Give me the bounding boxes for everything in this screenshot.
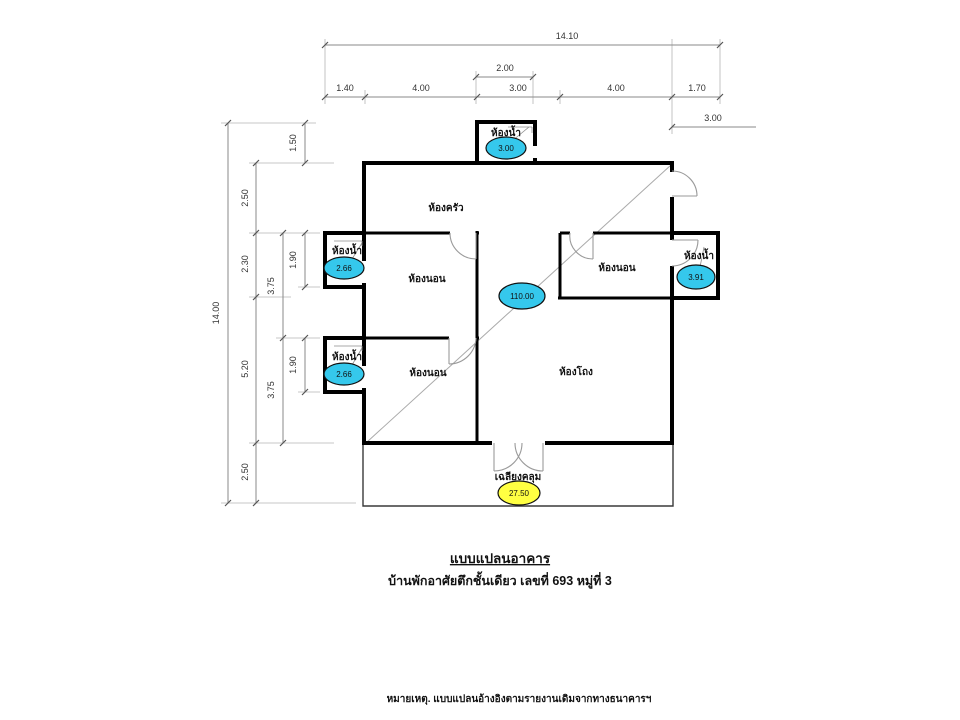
- dim-left-c2-2: 2.30: [240, 255, 250, 273]
- dim-left-total: 14.00: [211, 302, 221, 325]
- room-label-bedroom-bottom-left: ห้องนอน: [409, 367, 446, 379]
- dim-top-seg-2: 4.00: [412, 83, 430, 93]
- room-label-bedroom-top-left: ห้องนอน: [408, 273, 445, 285]
- dim-left-c2-3: 5.20: [240, 360, 250, 378]
- dim-left-c2-1: 2.50: [240, 189, 250, 207]
- room-label-bathroom-right: ห้องน้ำ: [684, 248, 714, 262]
- dim-top-seg-3: 3.00: [509, 83, 527, 93]
- extension-lines: [221, 39, 720, 503]
- area-value-bathroom-top: 3.00: [498, 144, 514, 153]
- room-label-hall: ห้องโถง: [559, 365, 593, 378]
- dim-left-c4-3: 1.90: [288, 356, 298, 374]
- room-label-kitchen: ห้องครัว: [428, 202, 464, 214]
- room-label-bathroom-left-lower: ห้องน้ำ: [332, 349, 362, 363]
- dim-top-right: 3.00: [704, 113, 722, 123]
- area-value-bathroom-left-lower: 2.66: [336, 370, 352, 379]
- door-exterior-right: [672, 171, 697, 196]
- dim-left-c3-2: 3.75: [266, 381, 276, 399]
- dimension-ticks: [225, 42, 723, 506]
- dim-left-c3-1: 3.75: [266, 277, 276, 295]
- area-value-bathroom-left-upper: 2.66: [336, 264, 352, 273]
- area-value-bathroom-right: 3.91: [688, 273, 704, 282]
- door-swings: [449, 171, 698, 471]
- area-value-porch: 27.50: [509, 489, 530, 498]
- area-value-total: 110.00: [510, 292, 534, 301]
- drawing-title: แบบแปลนอาคาร: [450, 551, 551, 566]
- dim-left-c4-2: 1.90: [288, 251, 298, 269]
- dim-left-c4-1: 1.50: [288, 134, 298, 152]
- dim-top-small: 2.00: [496, 63, 514, 73]
- door-bedroom-top-left: [450, 233, 476, 259]
- room-label-bathroom-left-upper: ห้องน้ำ: [332, 243, 362, 257]
- door-main-entrance: [494, 443, 543, 471]
- dim-left-c2-4: 2.50: [240, 463, 250, 481]
- dim-top-seg-1: 1.40: [336, 83, 354, 93]
- area-badges: 3.00 2.66 2.66 3.91 110.00 27.50: [324, 137, 715, 505]
- dim-top-total: 14.10: [556, 31, 579, 41]
- drawing-subtitle: บ้านพักอาศัยตึกชั้นเดียว เลขที่ 693 หมู่…: [388, 571, 612, 589]
- dimension-lines: [225, 42, 756, 506]
- drawing-note: หมายเหตุ. แบบแปลนอ้างอิงตามรายงานเดิมจาก…: [387, 693, 652, 705]
- floor-plan-drawing: 14.10 2.00 1.40 4.00 3.00 4.00 1.70 3.00…: [0, 0, 960, 720]
- dim-top-seg-5: 1.70: [688, 83, 706, 93]
- room-label-bedroom-right: ห้องนอน: [598, 262, 635, 274]
- door-bedroom-bottom-left: [449, 338, 476, 364]
- dim-top-seg-4: 4.00: [607, 83, 625, 93]
- floor-plan-page: 14.10 2.00 1.40 4.00 3.00 4.00 1.70 3.00…: [0, 0, 960, 720]
